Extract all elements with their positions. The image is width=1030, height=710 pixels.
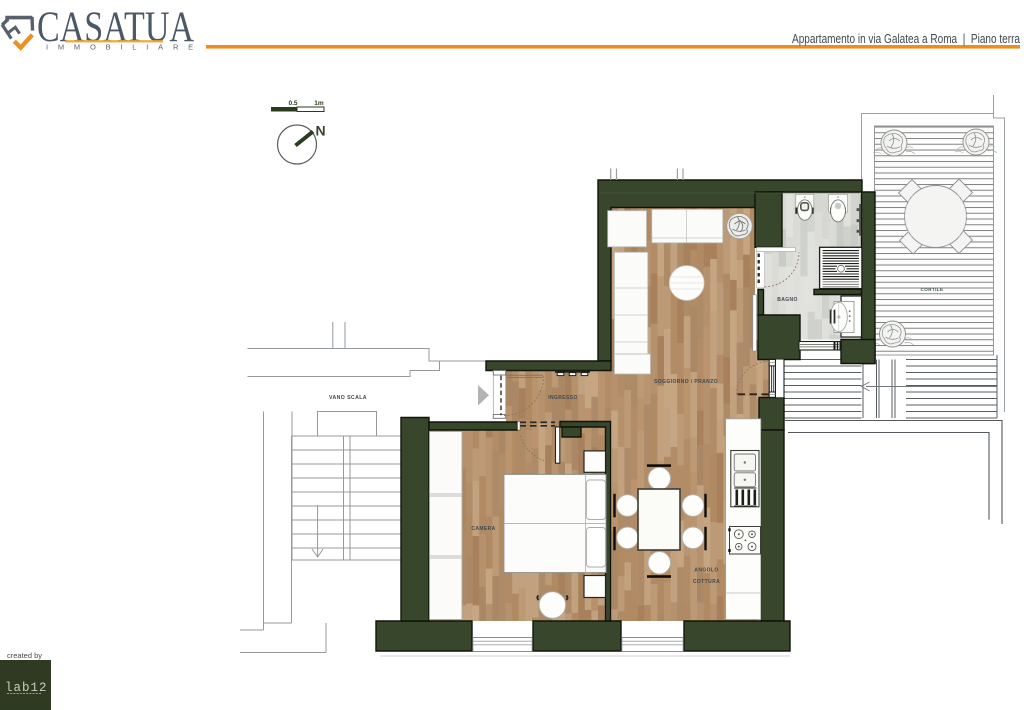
svg-text:N: N bbox=[316, 123, 326, 139]
svg-text:lab12: lab12 bbox=[5, 681, 48, 695]
svg-text:CORTILE: CORTILE bbox=[921, 287, 944, 292]
svg-text:INGRESSO: INGRESSO bbox=[548, 395, 578, 401]
svg-text:ANGOLO: ANGOLO bbox=[694, 568, 718, 574]
svg-text:0.5: 0.5 bbox=[288, 100, 297, 107]
svg-text:Appartamento in via Galatea a: Appartamento in via Galatea a Roma | Pia… bbox=[792, 32, 1020, 46]
svg-text:created by: created by bbox=[7, 651, 42, 660]
svg-text:SOGGIORNO / PRANZO: SOGGIORNO / PRANZO bbox=[654, 379, 718, 385]
svg-text:1m: 1m bbox=[314, 100, 324, 107]
svg-text:CAMERA: CAMERA bbox=[471, 526, 495, 532]
svg-text:COTTURA: COTTURA bbox=[693, 579, 720, 585]
svg-text:IMMOBILIARE: IMMOBILIARE bbox=[46, 43, 203, 52]
svg-text:BAGNO: BAGNO bbox=[777, 297, 798, 303]
svg-text:VANO SCALA: VANO SCALA bbox=[329, 395, 367, 401]
